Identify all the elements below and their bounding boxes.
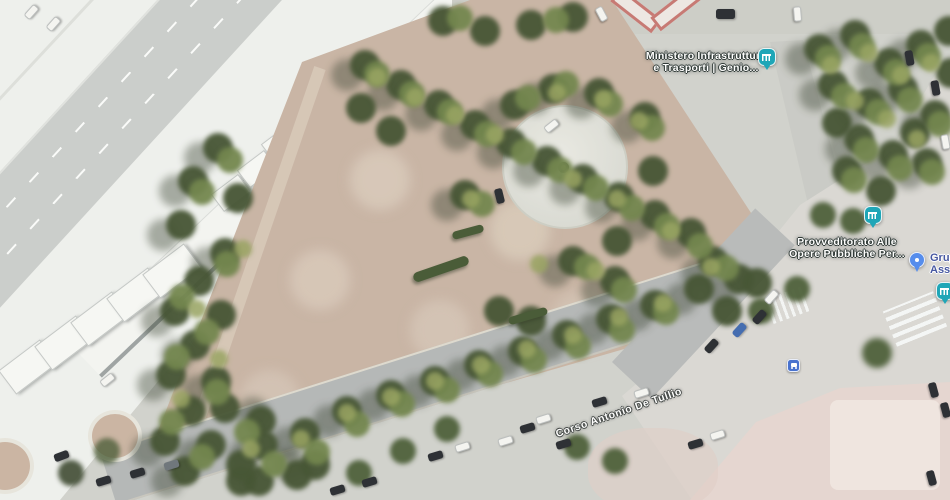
institution-pin-provveditorato[interactable]	[864, 206, 882, 224]
poi-label-business[interactable]: Grup Asso	[930, 252, 950, 276]
plaza-monument	[558, 162, 569, 173]
institution-pin-partial[interactable]	[936, 282, 950, 300]
car	[497, 435, 514, 447]
dot-icon	[915, 258, 919, 262]
business-pin[interactable]	[909, 252, 925, 268]
bus-stop-icon[interactable]	[787, 359, 800, 372]
satellite-map-canvas[interactable]: Ministero Infrastrutture e Trasporti | G…	[0, 0, 950, 500]
car	[904, 50, 914, 66]
car	[591, 396, 608, 408]
street-trees	[0, 0, 22, 22]
bank-icon	[868, 212, 877, 219]
car	[454, 441, 471, 453]
car	[535, 413, 552, 425]
car	[519, 422, 536, 434]
institution-pin-ministero[interactable]	[758, 48, 776, 66]
street-label-corso-partial[interactable]: Corso Antonio De Tullio	[251, 484, 447, 500]
bank-icon	[940, 288, 949, 295]
poi-label-provveditorato[interactable]: Provveditorato Alle Opere Pubbliche Per.…	[778, 236, 916, 260]
car	[361, 476, 378, 488]
car	[329, 484, 346, 496]
car	[940, 134, 950, 150]
circular-planter	[88, 410, 142, 462]
van	[716, 9, 735, 19]
car	[793, 6, 802, 22]
car	[427, 450, 444, 462]
car	[95, 475, 112, 487]
bank-icon	[762, 54, 771, 61]
